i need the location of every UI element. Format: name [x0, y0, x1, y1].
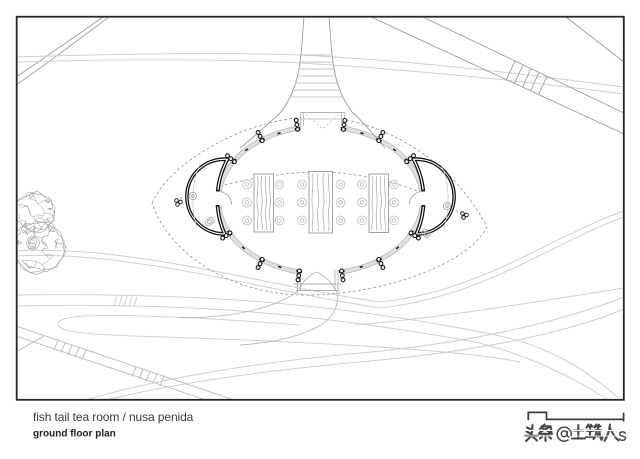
svg-text:fish tail tea room / nusa peni: fish tail tea room / nusa penida: [33, 410, 194, 424]
svg-text:ground floor plan: ground floor plan: [33, 429, 116, 440]
